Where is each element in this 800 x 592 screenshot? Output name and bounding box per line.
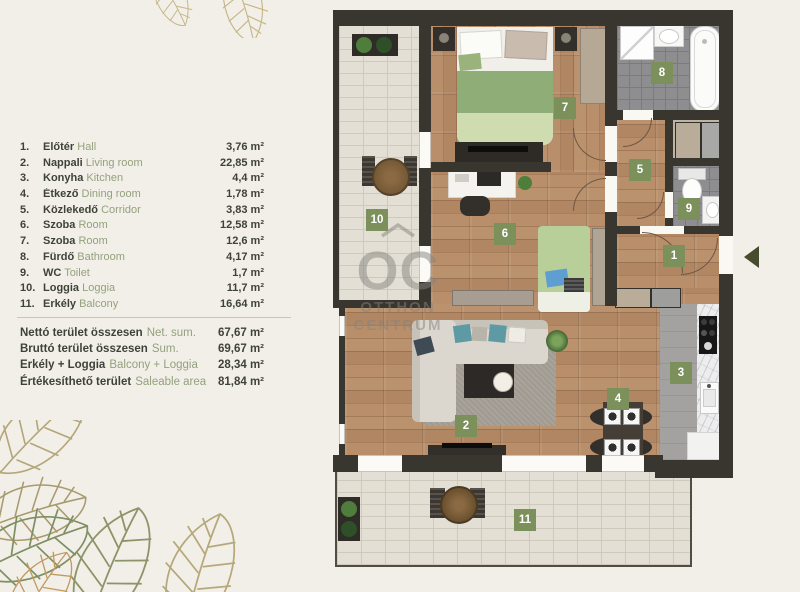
room-name-hu: Szoba [43, 235, 75, 247]
wall [431, 162, 551, 172]
planter-box [338, 497, 360, 541]
legend-number: 2. [20, 157, 43, 169]
plant [376, 37, 392, 53]
plant [356, 37, 372, 53]
total-label-en: Net. sum. [147, 327, 196, 339]
room-name-hu: Étkező [43, 188, 78, 200]
room-area: 12,58 m² [220, 219, 264, 231]
balcony-table [440, 486, 478, 524]
legend-number: 1. [20, 141, 43, 153]
window [358, 455, 402, 472]
decor-leaves-top [128, 0, 268, 38]
room-area: 1,78 m² [226, 188, 264, 200]
wall [605, 24, 617, 306]
total-area: 69,67 m² [218, 343, 264, 355]
kitchen-cabinet [687, 432, 721, 460]
watermark-logo: OC [336, 243, 460, 299]
pillow [458, 53, 482, 71]
room-badge-4: 4 [607, 388, 629, 410]
legend-number: 9. [20, 267, 43, 279]
planter-box [352, 34, 398, 56]
place-setting [604, 408, 621, 425]
legend-row: 11.Erkély Balcony16,64 m² [20, 298, 264, 314]
total-row: Erkély + LoggiaBalcony + Loggia28,34 m² [20, 359, 264, 375]
legend-number: 4. [20, 188, 43, 200]
cushion [488, 324, 507, 343]
sink-basin [706, 202, 719, 218]
total-label-hu: Értékesíthető terület [20, 376, 131, 388]
total-area: 81,84 m² [218, 376, 264, 388]
legend-row: 6.Szoba Room12,58 m² [20, 219, 264, 235]
burner [701, 319, 707, 325]
decor-plate [493, 372, 513, 392]
plant [546, 330, 568, 352]
room-area: 11,7 m² [227, 282, 264, 294]
place-setting [623, 439, 640, 456]
tv [442, 443, 492, 448]
room-name-en: Toilet [64, 267, 90, 279]
pillow [504, 30, 547, 60]
total-area: 28,34 m² [218, 359, 264, 371]
legend-number: 7. [20, 235, 43, 247]
watermark-text-1: OTTHON [336, 299, 460, 317]
legend-number: 5. [20, 204, 43, 216]
kitchen-sink [700, 382, 719, 414]
legend-row: 9.WC Toilet1,7 m² [20, 267, 264, 283]
room-legend: 1.Előtér Hall3,76 m² 2.Nappali Living ro… [20, 141, 264, 314]
knob [704, 342, 712, 350]
legend-row: 3.Konyha Kitchen4,4 m² [20, 172, 264, 188]
total-row: Bruttó terület összesenSum.69,67 m² [20, 343, 264, 359]
room-name-hu: Konyha [43, 172, 83, 184]
bathroom-sink [654, 25, 684, 47]
burner [701, 330, 707, 336]
room-name-en: Bathroom [77, 251, 125, 263]
laptop [564, 278, 584, 292]
legend-number: 10. [20, 282, 43, 294]
room-name-hu: Előtér [43, 141, 74, 153]
tv [468, 146, 528, 152]
legend-row: 4.Étkező Dining room1,78 m² [20, 188, 264, 204]
room-badge-11: 11 [514, 509, 536, 531]
total-area: 67,67 m² [218, 327, 264, 339]
plant [341, 501, 357, 517]
area-totals: Nettó terület összesenNet. sum.67,67 m² … [20, 327, 264, 392]
wall [655, 460, 733, 478]
room-name-en: Living room [86, 157, 143, 169]
entrance-door-opening [719, 236, 733, 274]
drain [702, 39, 707, 44]
nightstand [433, 27, 455, 51]
sink-basin [659, 29, 679, 44]
room-name-hu: Loggia [43, 282, 79, 294]
room-name-en: Kitchen [86, 172, 123, 184]
legend-number: 8. [20, 251, 43, 263]
room-name-en: Dining room [82, 188, 141, 200]
room-name-en: Room [78, 219, 107, 231]
window [419, 132, 431, 168]
room-area: 3,83 m² [226, 204, 264, 216]
legend-row: 2.Nappali Living room22,85 m² [20, 157, 264, 173]
total-row: Értékesíthető területSaleable area81,84 … [20, 376, 264, 392]
watermark-text-2: CENTRUM [336, 317, 460, 335]
room-badge-9: 9 [678, 198, 700, 220]
room-name-en: Room [78, 235, 107, 247]
total-label-hu: Nettó terület összesen [20, 327, 143, 339]
room-name-hu: Fürdő [43, 251, 74, 263]
legend-number: 11. [20, 298, 43, 310]
decor-leaves-bottom-left [0, 420, 330, 592]
cooktop [699, 316, 717, 354]
room-badge-1: 1 [663, 245, 685, 267]
burner [709, 330, 715, 336]
place-setting [604, 439, 621, 456]
legend-row: 7.Szoba Room12,6 m² [20, 235, 264, 251]
room-area: 4,4 m² [232, 172, 264, 184]
room-name-en: Loggia [82, 282, 115, 294]
cushion [472, 327, 488, 342]
door-opening [605, 126, 617, 162]
room-area: 4,17 m² [226, 251, 264, 263]
single-bed [538, 226, 590, 312]
room-name-en: Hall [77, 141, 96, 153]
entrance-arrow [744, 246, 759, 268]
nightstand [555, 27, 577, 51]
room-area: 3,76 m² [226, 141, 264, 153]
total-label-en: Balcony + Loggia [109, 359, 198, 371]
legend-row: 10.Loggia Loggia11,7 m² [20, 282, 264, 298]
dresser [452, 290, 534, 306]
loggia-table [372, 158, 410, 196]
door-opening [665, 192, 673, 218]
legend-row: 1.Előtér Hall3,76 m² [20, 141, 264, 157]
legend-row: 5.Közlekedő Corridor3,83 m² [20, 204, 264, 220]
closet [651, 288, 681, 308]
room-area: 1,7 m² [232, 267, 264, 279]
sofa-chaise [412, 320, 456, 422]
blanket [457, 71, 553, 117]
room-area: 12,6 m² [226, 235, 264, 247]
window [339, 424, 345, 444]
blanket-foot [457, 113, 553, 145]
legend-number: 6. [20, 219, 43, 231]
total-label-hu: Bruttó terület összesen [20, 343, 148, 355]
room-name-hu: WC [43, 267, 61, 279]
room-badge-8: 8 [651, 62, 673, 84]
total-label-en: Sum. [152, 343, 179, 355]
wall [333, 10, 733, 26]
room-badge-6: 6 [494, 223, 516, 245]
room-badge-5: 5 [629, 159, 651, 181]
place-setting [623, 408, 640, 425]
total-label-en: Saleable area [135, 376, 206, 388]
otthon-centrum-watermark: OC OTTHON CENTRUM [336, 222, 460, 335]
total-label-hu: Erkély + Loggia [20, 359, 105, 371]
balcony-door [602, 455, 644, 472]
faucet [707, 384, 711, 388]
shower [620, 26, 654, 60]
coffee-table [464, 364, 514, 398]
desk-item [455, 174, 469, 182]
lamp [561, 33, 571, 43]
door-opening [605, 176, 617, 212]
room-badge-3: 3 [670, 362, 692, 384]
burner [709, 319, 715, 325]
wall [665, 158, 719, 166]
closet [615, 288, 651, 308]
room-badge-7: 7 [554, 97, 576, 119]
wardrobe [580, 28, 607, 104]
room-area: 16,64 m² [220, 298, 264, 310]
laptop [477, 172, 501, 186]
room-name-en: Balcony [79, 298, 118, 310]
floorplan-page: 1.Előtér Hall3,76 m² 2.Nappali Living ro… [0, 0, 800, 592]
closet [701, 122, 721, 162]
room-badge-10: 10 [366, 209, 388, 231]
tv-board [455, 142, 543, 162]
room-name-en: Corridor [101, 204, 141, 216]
room-name-hu: Szoba [43, 219, 75, 231]
cushion [507, 326, 526, 343]
legend-row: 8.Fürdő Bathroom4,17 m² [20, 251, 264, 267]
room-area: 22,85 m² [220, 157, 264, 169]
room-name-hu: Közlekedő [43, 204, 98, 216]
room-name-hu: Nappali [43, 157, 83, 169]
blanket-foot [538, 292, 590, 312]
room-badge-2: 2 [455, 415, 477, 437]
legend-divider [17, 317, 291, 318]
plant [341, 521, 357, 537]
total-row: Nettó terület összesenNet. sum.67,67 m² [20, 327, 264, 343]
closet [675, 122, 701, 162]
bathtub [690, 26, 720, 112]
balcony-door [502, 455, 586, 472]
legend-number: 3. [20, 172, 43, 184]
lamp [439, 33, 449, 43]
plant [518, 176, 532, 190]
room-name-hu: Erkély [43, 298, 76, 310]
sink-basin [703, 389, 716, 407]
double-bed [457, 27, 553, 145]
desk-chair [460, 196, 490, 216]
